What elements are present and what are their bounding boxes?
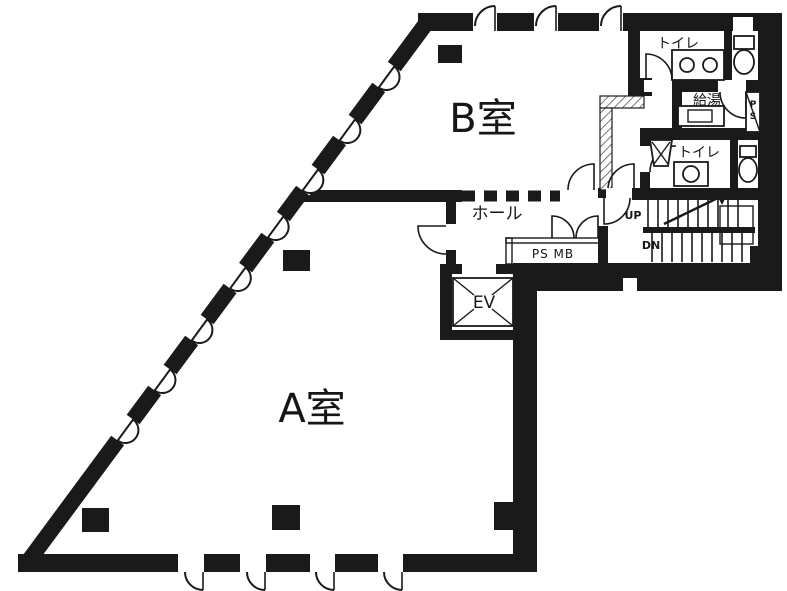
toilet-top-stall-wall — [724, 31, 732, 80]
fixtures — [650, 36, 760, 186]
stairs-up-label: UP — [625, 209, 642, 222]
pillar — [283, 250, 310, 271]
psmb-left-wall — [506, 238, 512, 264]
sink-basin — [680, 58, 694, 72]
pillar — [438, 45, 462, 63]
window-arc — [185, 572, 203, 590]
ps-mb-label: PS MB — [532, 247, 574, 261]
toilet-bowl — [734, 50, 754, 74]
elevator-label: EV — [473, 293, 496, 313]
room-a-label: A室 — [278, 386, 345, 432]
hatch-wall-horizontal — [600, 96, 644, 108]
stair-corner-step — [750, 246, 760, 266]
window-arc — [316, 572, 334, 590]
hall-label: ホール — [472, 204, 523, 224]
toilet-tank — [740, 146, 756, 157]
kitchenette-label: 給湯 — [693, 92, 721, 109]
floor-plan-drawing: B室 A室 ホール トイレ 給湯 トイレ PS MB EV UP DN P S — [0, 0, 787, 591]
room-divider-wall — [296, 190, 462, 202]
door-arc-room-b — [568, 164, 594, 190]
diagonal-wall — [21, 20, 432, 568]
door-arc-hall-a — [418, 226, 446, 254]
ev-left-wall — [440, 264, 452, 340]
pipe-shaft-p-label: P — [750, 100, 757, 110]
toilet-tank — [734, 36, 754, 49]
double-door-left — [552, 216, 574, 238]
double-door-right — [576, 216, 598, 238]
pillar — [272, 505, 300, 530]
ev-bottom-wall — [440, 330, 530, 340]
room-b-label: B室 — [449, 96, 516, 142]
toilet-bowl — [739, 158, 757, 182]
stairs-down-label: DN — [642, 239, 660, 252]
kyuto-bottom-wall — [640, 128, 760, 140]
sink-basin — [683, 166, 699, 182]
pillar — [82, 508, 109, 532]
stair-landing-rail — [720, 206, 753, 244]
room-b-right-wall — [628, 31, 640, 85]
stair-landing-edge — [643, 227, 755, 233]
ev-right-wall — [518, 264, 530, 340]
kyuto-counter — [678, 106, 724, 126]
pillar — [494, 502, 520, 530]
window-arc — [384, 572, 402, 590]
door-arc-toilet-top — [646, 54, 672, 80]
toilet-bottom-label: トイレ — [678, 145, 720, 161]
floor-plan-page: B室 A室 ホール トイレ 給湯 トイレ PS MB EV UP DN P S — [0, 0, 787, 591]
toilet-top-label: トイレ — [657, 36, 699, 52]
right-wall — [758, 13, 782, 291]
window-arc — [247, 572, 265, 590]
toilet-bottom-stall-wall — [730, 140, 738, 188]
psmb-top-wall — [506, 238, 600, 243]
right-block-bottom-wall — [513, 263, 782, 291]
wall-openings — [118, 13, 753, 572]
outer-walls — [18, 13, 782, 572]
sink-basin — [703, 58, 717, 72]
pipe-shaft-s-label: S — [750, 112, 756, 122]
bottom-wall — [18, 554, 537, 572]
